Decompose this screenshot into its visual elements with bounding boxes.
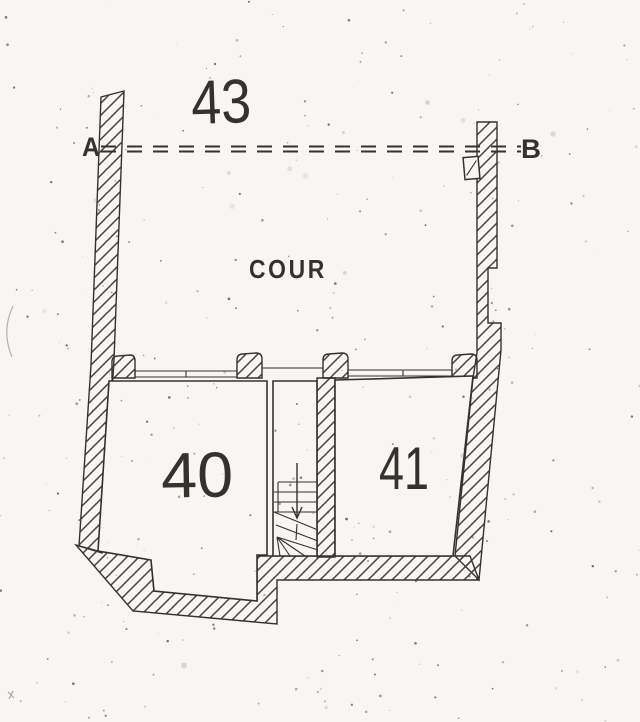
- section-marker-a: A: [82, 132, 100, 162]
- section-marker-b: B: [521, 134, 541, 164]
- room-41-label: 41: [379, 435, 429, 502]
- parcel-number-43: 43: [190, 67, 252, 138]
- facade-pillar-3: [323, 353, 348, 378]
- stairwell-outline: [273, 381, 317, 556]
- flue-box: [463, 156, 480, 179]
- courtyard-label: COUR: [249, 254, 327, 284]
- room-40-label: 40: [160, 438, 233, 511]
- facade-pillar-4: [452, 354, 477, 378]
- facade-pillar-1: [112, 355, 135, 378]
- stairwell-right-wall: [317, 378, 335, 557]
- floorplan-page: 43 A B COUR 40 41: [0, 0, 640, 722]
- floorplan-canvas: 43 A B COUR 40 41: [0, 0, 640, 722]
- facade-pillar-2: [237, 353, 262, 378]
